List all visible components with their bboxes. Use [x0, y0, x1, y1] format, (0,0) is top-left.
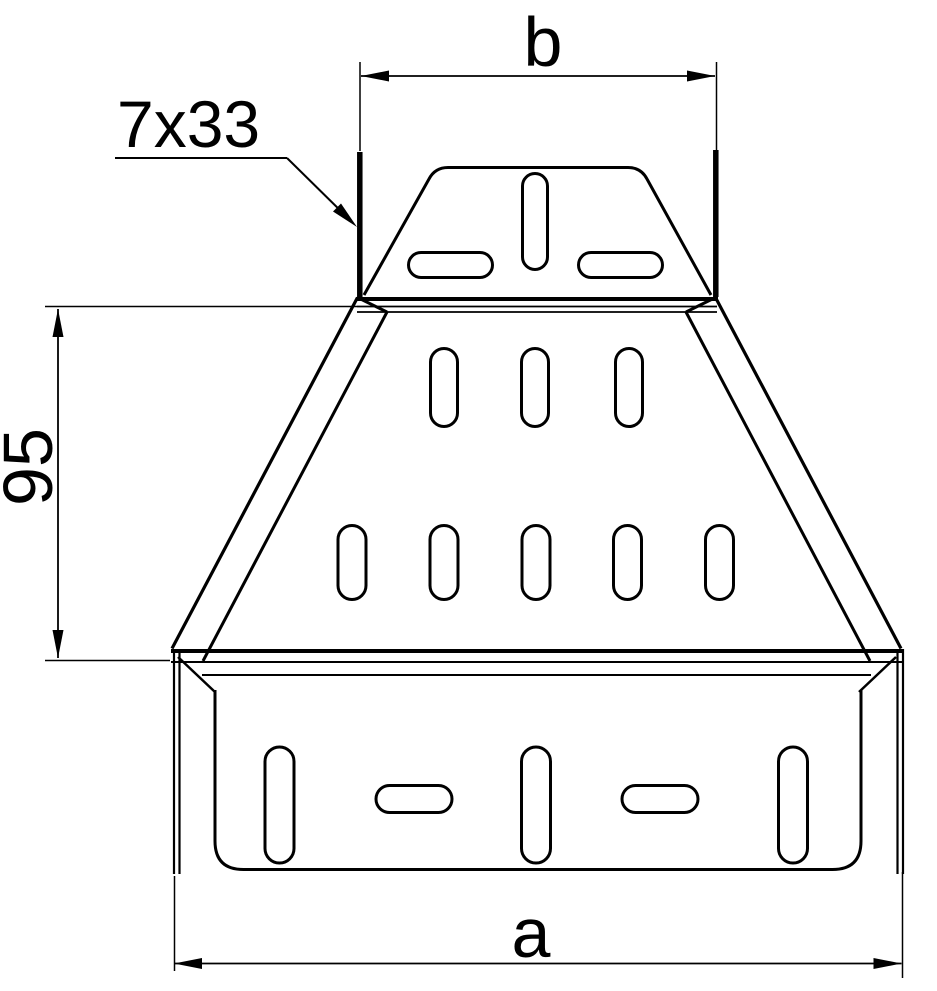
- reducer-bottom-section: [171, 649, 903, 874]
- callout-7x33: [115, 158, 357, 227]
- dim-b-label: b: [524, 3, 563, 81]
- slot-hole: [431, 349, 458, 427]
- dim-95-label: 95: [0, 428, 67, 506]
- taper-outer-edge-left: [172, 298, 358, 649]
- slot-hole: [522, 526, 550, 600]
- slot-hole: [779, 747, 808, 863]
- slot-hole: [376, 786, 452, 813]
- reducer-middle-section: [172, 298, 901, 662]
- taper-inner-edge-right: [686, 312, 870, 661]
- technical-drawing-page: b 7x33: [0, 0, 937, 991]
- slot-hole: [338, 526, 366, 600]
- arrowhead-right-icon: [687, 71, 715, 82]
- arrowhead-right-icon: [874, 958, 902, 969]
- callout-7x33-label: 7x33: [117, 87, 260, 161]
- bottom-flange-outline: [215, 690, 861, 870]
- arrowhead-left-icon: [174, 958, 202, 969]
- arrowhead-up-icon: [53, 309, 64, 337]
- slot-hole: [522, 349, 549, 427]
- taper-inner-edge-left: [203, 312, 387, 661]
- slot-hole: [706, 526, 734, 600]
- reducer-drawing-canvas: b 7x33: [0, 0, 937, 991]
- slot-hole: [614, 526, 642, 600]
- slot-hole: [616, 349, 643, 427]
- arrowhead-down-icon: [53, 630, 64, 658]
- reducer-top-section: [356, 150, 718, 312]
- slot-hole: [523, 174, 548, 270]
- arrowhead-left-icon: [361, 71, 389, 82]
- slot-hole: [430, 526, 458, 600]
- slot-hole: [579, 253, 663, 278]
- slot-hole: [265, 747, 294, 863]
- dim-a-label: a: [512, 894, 551, 972]
- dimension-95: [45, 307, 357, 661]
- slot-hole: [622, 786, 698, 813]
- slot-hole: [409, 253, 493, 278]
- slot-hole: [522, 747, 551, 863]
- taper-outer-edge-right: [716, 298, 902, 649]
